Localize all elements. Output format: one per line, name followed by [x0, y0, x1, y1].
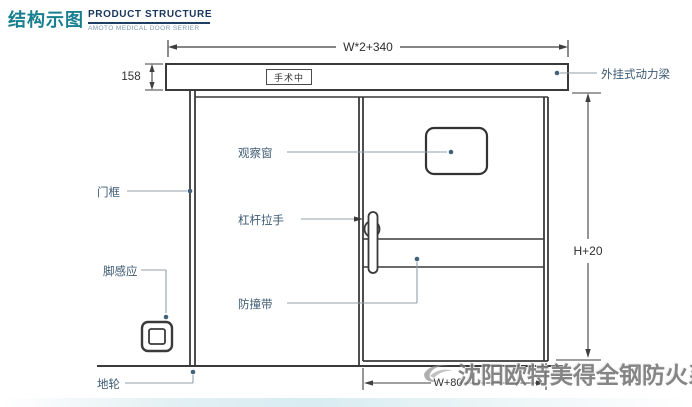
anti-collision-strip: [363, 239, 544, 267]
power-beam: [166, 64, 568, 90]
dimension-bottom-width: W+80: [430, 377, 465, 389]
dimension-door-height: H+20: [570, 244, 605, 258]
label-observation-window: 观察窗: [238, 145, 273, 161]
label-ground-wheel: 地轮: [97, 376, 120, 392]
door-frame-post: [190, 90, 195, 366]
door-status-sign: 手术中: [266, 69, 312, 85]
lever-handle: [365, 212, 380, 273]
bottom-decoration-bar: [0, 398, 692, 407]
label-power-beam: 外挂式动力梁: [601, 66, 670, 82]
label-door-frame: 门框: [97, 184, 120, 200]
door-structure-diagram: [0, 0, 692, 407]
dimension-top-width: W*2+340: [340, 40, 396, 54]
label-lever-handle: 杠杆拉手: [238, 212, 284, 228]
door-height-dimension: [556, 93, 601, 360]
foot-sensor-symbol: [142, 322, 172, 351]
beam-height-dimension: [145, 64, 163, 90]
dimension-beam-height: 158: [118, 71, 143, 83]
leader-dots: [164, 71, 560, 375]
page: 结构示图 PRODUCT STRUCTURE AMOTO MEDICAL DOO…: [0, 0, 692, 407]
label-anti-collision-strip: 防撞带: [238, 296, 273, 312]
observation-window: [426, 128, 487, 174]
label-foot-sensor: 脚感应: [103, 263, 138, 279]
